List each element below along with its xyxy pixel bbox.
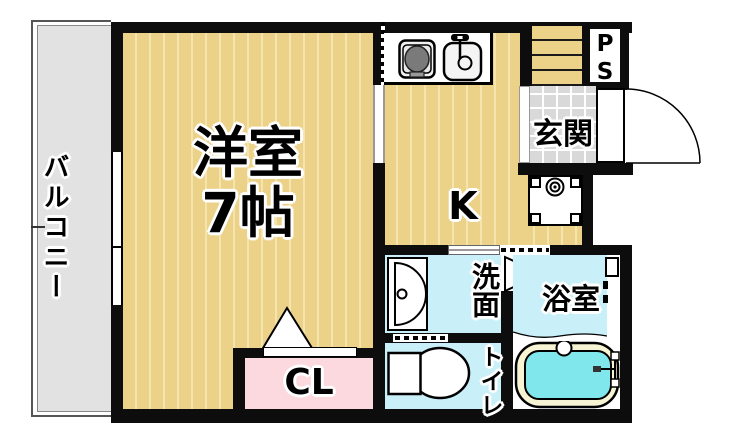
entrance-label: 玄関: [531, 109, 595, 153]
floor-plan: バルコニー PS 玄関: [0, 0, 738, 434]
bathroom-label: 浴室: [535, 276, 607, 318]
room-opening: [373, 85, 385, 163]
washroom-label: 洗面: [464, 262, 504, 318]
sliding-door-track: [449, 249, 499, 251]
closet-door-triangle: [261, 306, 314, 350]
window-center-tick: [111, 246, 123, 248]
wall-kitchen-entrance: [520, 22, 532, 93]
kitchen-label: K: [440, 184, 486, 228]
wall-below-entrance: [518, 163, 633, 175]
wall-right-lower: [620, 245, 632, 423]
entrance-door-leaf: [596, 88, 625, 163]
wall-left-lower: [111, 305, 123, 421]
bathroom-fixture: [605, 257, 619, 277]
wall-left-upper: [111, 22, 123, 152]
sink-icon: [442, 32, 484, 82]
toilet-dashes: [395, 336, 446, 340]
window: [111, 152, 123, 305]
washer-pan-corner-tl: [530, 177, 541, 188]
closet-label: CL: [245, 362, 373, 403]
faucet-icon: [544, 176, 566, 198]
western-room-size: 7帖: [133, 186, 363, 241]
western-room-label: 洋室: [133, 126, 363, 181]
bathtub-icon: [514, 341, 620, 409]
toilet-icon: [387, 345, 473, 402]
wall-right-of-washer: [582, 175, 593, 245]
pipe-space-label: PS: [594, 31, 618, 81]
balcony-label: バルコニー: [36, 153, 73, 303]
closet-door-bar: [263, 347, 357, 357]
entrance-door-arc: [625, 88, 707, 166]
kitchen-floor-pan-bottom: [521, 226, 585, 245]
washbasin-bowl: [390, 260, 426, 328]
washer-pan-corner-bl: [530, 213, 541, 224]
washer-pan-corner-tr: [570, 177, 581, 188]
washroom-dashes: [501, 248, 549, 252]
stove-icon: [398, 39, 436, 80]
wall-bottom: [111, 409, 632, 423]
wall-kitchen-upper: [373, 22, 381, 85]
entrance-step-edge: [519, 86, 530, 163]
wall-kitchen-lower: [373, 163, 385, 421]
washer-pan-corner-br: [570, 213, 581, 224]
wall-kitchen-bottom-right: [550, 245, 582, 255]
toilet-label: トイレ: [472, 345, 506, 417]
closet-wall-left: [233, 348, 245, 409]
entrance-steps: [532, 26, 582, 86]
wall-kitchen-bottom-left: [373, 245, 448, 255]
